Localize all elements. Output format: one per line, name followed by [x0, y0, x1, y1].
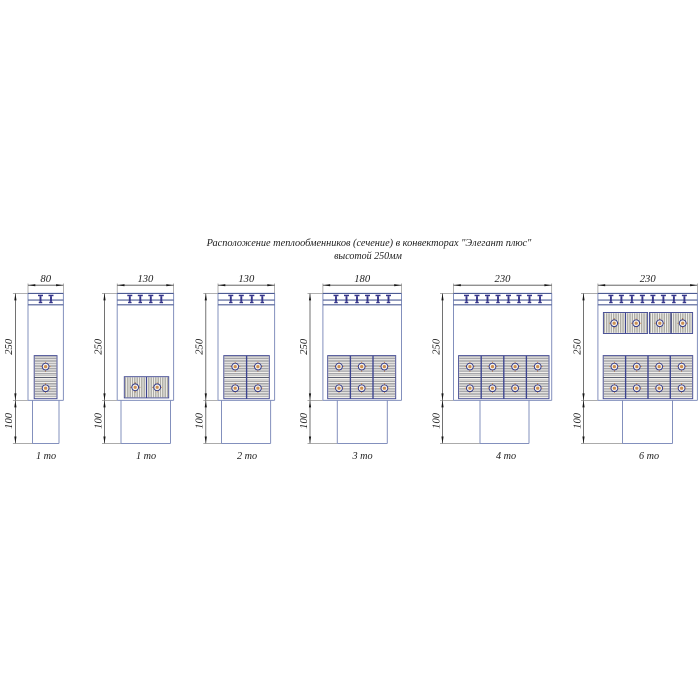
- svg-text:250: 250: [431, 338, 442, 355]
- svg-text:250: 250: [572, 338, 583, 355]
- svg-text:100: 100: [195, 412, 206, 429]
- svg-text:1 то: 1 то: [36, 451, 56, 462]
- svg-text:180: 180: [354, 274, 371, 285]
- svg-text:250: 250: [93, 338, 104, 355]
- svg-text:4 то: 4 то: [496, 451, 516, 462]
- svg-text:80: 80: [40, 274, 51, 285]
- svg-text:230: 230: [640, 274, 657, 285]
- svg-text:6 то: 6 то: [639, 451, 659, 462]
- svg-text:250: 250: [299, 338, 310, 355]
- svg-text:Расположение теплообменников (: Расположение теплообменников (сечение) в…: [206, 238, 532, 249]
- svg-text:1 то: 1 то: [136, 451, 156, 462]
- svg-text:3 то: 3 то: [351, 451, 372, 462]
- svg-text:100: 100: [299, 412, 310, 429]
- svg-text:130: 130: [238, 274, 255, 285]
- svg-text:100: 100: [93, 412, 104, 429]
- svg-text:250: 250: [195, 338, 206, 355]
- svg-text:100: 100: [572, 412, 583, 429]
- svg-text:100: 100: [4, 412, 15, 429]
- svg-text:100: 100: [431, 412, 442, 429]
- svg-text:250: 250: [4, 338, 15, 355]
- svg-text:высотой 250мм: высотой 250мм: [334, 251, 402, 262]
- svg-text:130: 130: [137, 274, 154, 285]
- svg-text:230: 230: [495, 274, 512, 285]
- svg-text:2 то: 2 то: [237, 451, 257, 462]
